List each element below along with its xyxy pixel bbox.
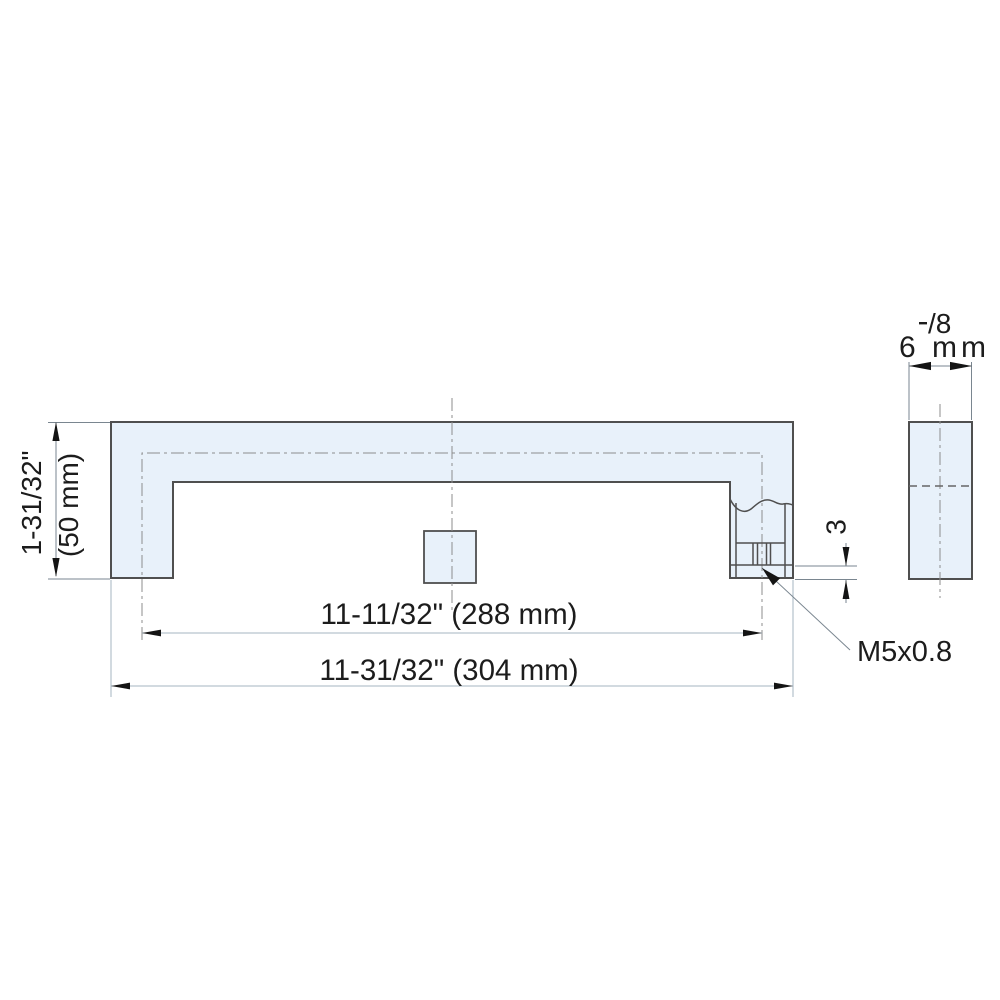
dimension-arrow (142, 630, 161, 637)
hole-centers-label: 11-11/32" (288 mm) (321, 598, 578, 631)
thread-spec-label: M5x0.8 (857, 636, 952, 668)
side-width-mm-label: 6 mm (899, 331, 990, 364)
height-mm-label: (50 mm) (53, 453, 84, 557)
offset-extension-lines (795, 566, 857, 580)
dimension-arrow (743, 630, 762, 637)
drawing-canvas: 1-31/32" (50 mm) 11-11/32" (288 mm) 11-3… (0, 0, 1000, 1000)
dimension-arrow (52, 422, 59, 441)
height-inches-label: 1-31/32" (16, 451, 47, 556)
drawing-page: 1-31/32" (50 mm) 11-11/32" (288 mm) 11-3… (0, 0, 1000, 1000)
overall-length-label: 11-31/32" (304 mm) (319, 654, 578, 687)
dimension-arrow (52, 558, 59, 577)
dimension-arrow (843, 580, 850, 599)
offset-value-label: 3 (821, 519, 852, 535)
clipped-digit-fragment (919, 322, 927, 324)
dimension-arrow (111, 683, 130, 690)
dimension-arrow (843, 547, 850, 566)
mounting-square (424, 531, 476, 583)
dimension-arrow (774, 683, 793, 690)
